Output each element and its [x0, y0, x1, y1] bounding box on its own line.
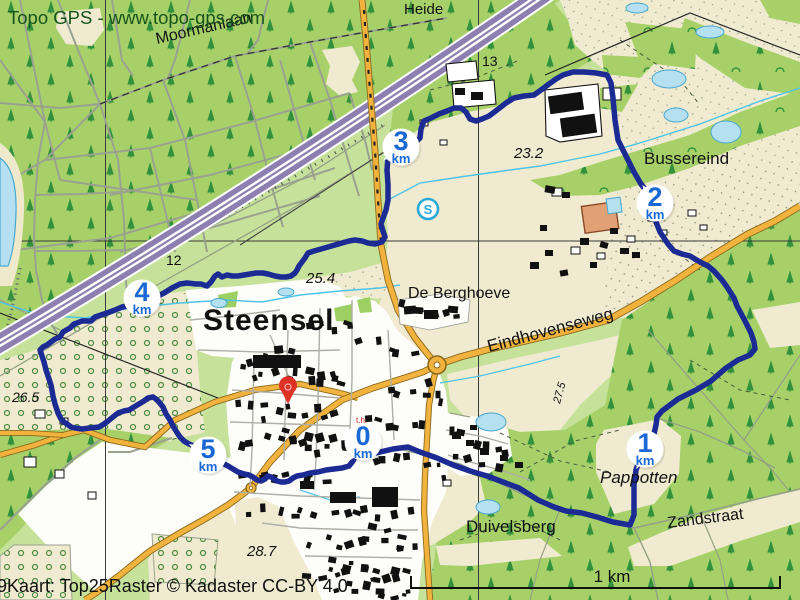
svg-text:km: km — [199, 459, 218, 474]
svg-text:Heide: Heide — [404, 1, 443, 18]
svg-text:12: 12 — [166, 252, 182, 268]
svg-text:km: km — [636, 453, 655, 468]
svg-text:26.5: 26.5 — [11, 389, 39, 405]
svg-text:km: km — [646, 207, 665, 222]
svg-text:23.2: 23.2 — [513, 145, 544, 162]
svg-text:13: 13 — [482, 53, 498, 69]
svg-text:Bussereind: Bussereind — [644, 149, 729, 168]
svg-text:S: S — [424, 202, 433, 217]
svg-text:km: km — [354, 446, 373, 461]
svg-text:De Berghoeve: De Berghoeve — [408, 285, 510, 302]
svg-text:9Kaart: Top25Raster © Kadaster: 9Kaart: Top25Raster © Kadaster CC-BY 4.0 — [0, 576, 348, 596]
svg-text:Pappotten: Pappotten — [600, 468, 678, 487]
svg-text:28.7: 28.7 — [246, 543, 277, 560]
svg-text:Duivelsberg: Duivelsberg — [466, 517, 556, 536]
svg-text:km: km — [133, 302, 152, 317]
svg-text:km: km — [392, 151, 411, 166]
svg-text:25.4: 25.4 — [305, 270, 335, 287]
svg-text:1 km: 1 km — [594, 567, 631, 586]
svg-text:Topo GPS - www.topo-gps.com: Topo GPS - www.topo-gps.com — [8, 7, 265, 28]
svg-text:Steensel: Steensel — [203, 304, 334, 337]
